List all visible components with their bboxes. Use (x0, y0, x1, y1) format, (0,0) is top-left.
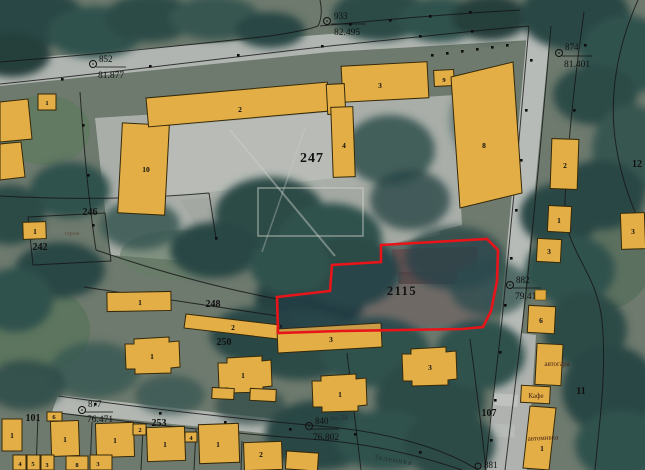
map-canvas[interactable]: 10 2 3 4 9 8 2 1 3 6 автогара Кафе автом… (0, 0, 645, 470)
building-number-label: 1 (241, 371, 245, 380)
building-house[interactable] (250, 388, 277, 401)
survey-point-id: 874 (565, 42, 579, 52)
parcel-number: 248 (206, 299, 221, 310)
parcel-number: 101 (26, 413, 41, 424)
parcel-number: 246 (83, 207, 98, 218)
building-number-label: 1 (163, 440, 167, 449)
survey-point-id: 881 (484, 460, 498, 470)
bus-station-label: автогара (544, 360, 570, 368)
survey-point-elevation: 81.877 (98, 71, 124, 81)
parcel-number: 12 (632, 159, 642, 170)
building-number-label: 1 (150, 352, 154, 361)
quarter-label: кв. 24 (330, 414, 348, 422)
building-number-label: 10 (142, 165, 150, 174)
building-number-label: 1 (338, 390, 342, 399)
building-number-label: 1 (557, 216, 561, 225)
building-house[interactable] (212, 387, 235, 399)
building-number-label: 3 (631, 227, 635, 236)
building-number-label: 2 (259, 450, 263, 459)
cadastral-map-view[interactable]: 10 2 3 4 9 8 2 1 3 6 автогара Кафе автом… (0, 0, 645, 470)
survey-point-id: 852 (99, 54, 113, 64)
survey-point-id: 840 (315, 416, 329, 426)
building-school-8[interactable] (451, 62, 522, 208)
parcel-number: 242 (33, 242, 48, 253)
parcel-number: 250 (217, 337, 232, 348)
building-number-label: 2 (231, 323, 235, 332)
parcel-number: 247 (300, 151, 324, 166)
building-number-label: 1 (216, 440, 220, 449)
building-number-label: 1 (138, 298, 142, 307)
building-number-label: 8 (482, 141, 486, 150)
survey-point-id: 877 (88, 399, 102, 409)
building-number-label: 1 (113, 436, 117, 445)
survey-point-elevation: 76.802 (313, 433, 339, 443)
survey-point-elevation: 79.41 (515, 292, 537, 302)
building-number-label: 1 (63, 435, 67, 444)
building-number-label: 3 (428, 363, 432, 372)
building-house[interactable] (285, 451, 318, 470)
building-number-label: 3 (329, 335, 333, 344)
building-number-label: 3 (547, 247, 551, 256)
building-number-label: 2 (238, 105, 242, 114)
survey-point-id: 882 (516, 275, 530, 285)
building-left-edge-b[interactable] (0, 142, 25, 180)
survey-point-elevation: 81.401 (564, 60, 590, 70)
survey-point-id: 933 (334, 11, 348, 21)
parcel-number: 11 (576, 386, 585, 397)
building-school-3[interactable] (341, 62, 429, 102)
survey-point-elevation: 76.471 (87, 415, 113, 425)
target-parcel-number: 2115 (387, 284, 417, 298)
highlight-marker (535, 290, 546, 300)
building-number-label: 1 (10, 431, 14, 440)
building-left-edge-a[interactable] (0, 99, 32, 142)
building-number-label: 2 (138, 427, 141, 434)
parcel-number: 107 (482, 408, 497, 419)
building-number-label: 6 (539, 316, 543, 325)
building-number-label: 1 (33, 227, 37, 236)
building-number-label: 1 (540, 444, 544, 453)
building-house[interactable] (244, 441, 283, 470)
building-number-label: 4 (342, 141, 346, 150)
building-house[interactable] (90, 455, 112, 470)
parcel-number: 253 (152, 418, 167, 429)
building-number-label: 1 (45, 100, 48, 107)
survey-point-elevation: 82.495 (334, 28, 360, 38)
garage-label: гараж (65, 231, 81, 237)
cafe-label: Кафе (528, 392, 543, 400)
building-number-label: 3 (378, 81, 382, 90)
building-number-label: 2 (563, 161, 567, 170)
car-wash-label: автомивка (527, 433, 559, 443)
